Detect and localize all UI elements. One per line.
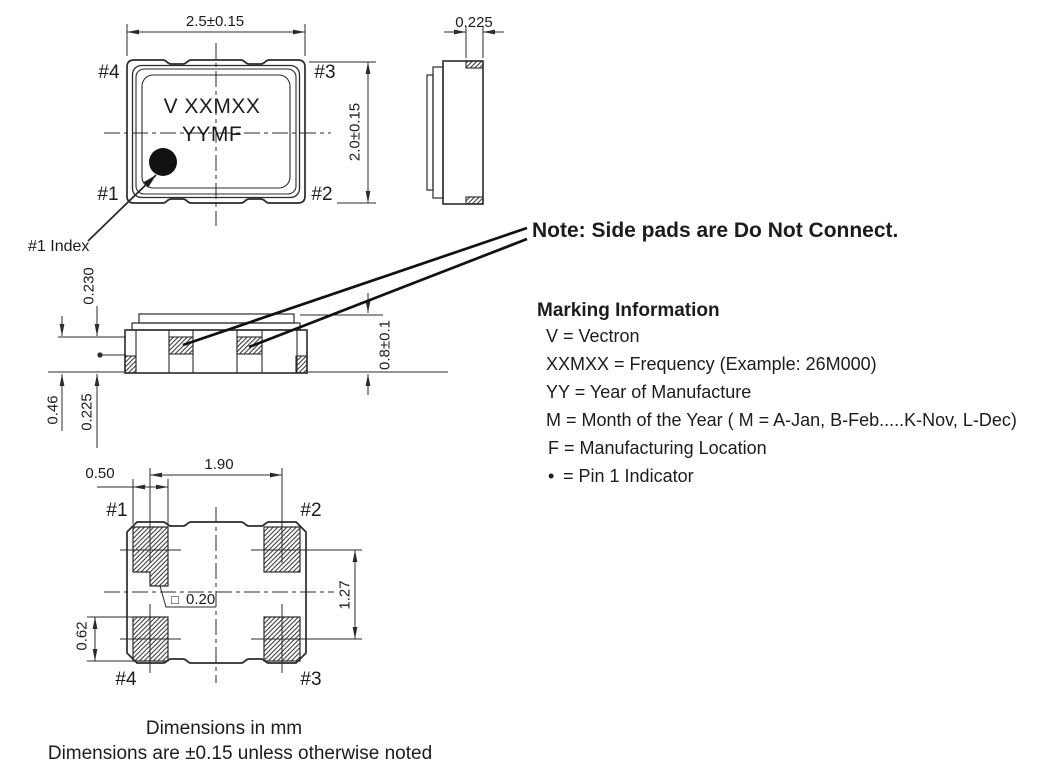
bottom-view-pitch-x-value: 1.90: [204, 456, 233, 473]
top-view-width-value: 2.5±0.15: [186, 13, 244, 30]
side-view-terminal-value: 0.225: [78, 393, 95, 431]
bottom-view-pin2-label: #2: [300, 500, 321, 521]
bottom-view-pitch-y-value: 1.27: [336, 580, 353, 609]
marking-info-line-v: V = Vectron: [546, 326, 640, 346]
pin1-indicator-text: = Pin 1 Indicator: [563, 466, 694, 486]
end-view-lid-step1: [433, 67, 443, 198]
top-view-height-dimension: [309, 62, 376, 203]
marking-info-line-m: M = Month of the Year ( M = A-Jan, B-Feb…: [546, 410, 1017, 430]
top-view-pin1-label: #1: [97, 184, 118, 205]
side-view-lid-value: 0.230: [80, 267, 97, 305]
note-leader-lines: [183, 228, 527, 347]
top-view-pin2-label: #2: [311, 184, 332, 205]
side-view-corner-terminal-right: [296, 356, 307, 373]
bottom-view-pad-height-value: 0.62: [73, 621, 90, 650]
bottom-view-pin4-label: #4: [115, 669, 137, 690]
footer-tolerance-note: Dimensions are ±0.15 unless otherwise no…: [48, 743, 432, 764]
index-notch-symbol: □: [171, 592, 179, 607]
footer-units-note: Dimensions in mm: [146, 718, 302, 739]
top-view-pin4-label: #4: [98, 62, 120, 83]
marking-info-line-yy: YY = Year of Manufacture: [546, 382, 751, 402]
side-pads-note: Note: Side pads are Do Not Connect.: [532, 219, 898, 242]
pin1-indicator-bullet: •: [548, 466, 554, 486]
bottom-view-pad-width-value: 0.50: [85, 465, 114, 482]
side-view-height-value: 0.8±0.1: [376, 320, 393, 370]
side-view-lid-layer1: [132, 323, 300, 330]
side-view-side-pad-left: [169, 337, 193, 354]
index-notch-value: 0.20: [186, 591, 215, 608]
bottom-view-pin3-label: #3: [300, 669, 321, 690]
datasheet-drawing-sheet: 2.5±0.15 2.0±0.15 #4 #3 #1 #2 V XXMXX YY…: [0, 0, 1055, 774]
top-view-pin3-label: #3: [314, 62, 335, 83]
end-view-lid-step2: [427, 75, 433, 190]
end-view-pad-value: 0.225: [455, 14, 493, 31]
end-view-top-pad: [466, 61, 483, 68]
pin1-index-dot: [149, 148, 177, 176]
end-view-bottom-pad: [466, 197, 483, 204]
side-view-corner-terminal-left: [125, 356, 136, 373]
top-view: 2.5±0.15 2.0±0.15 #4 #3 #1 #2 V XXMXX YY…: [28, 13, 376, 255]
device-marking-line2: YYMF: [182, 123, 242, 146]
marking-info-line-f: F = Manufacturing Location: [548, 438, 767, 458]
device-marking-line1: V XXMXX: [164, 95, 261, 118]
marking-info-heading: Marking Information: [537, 300, 720, 321]
annotations: Note: Side pads are Do Not Connect. Mark…: [532, 219, 1017, 486]
footer-notes: Dimensions in mm Dimensions are ±0.15 un…: [48, 718, 432, 764]
bottom-view: 1.90 0.50 1.27 0.62 □ 0.20 #1 #2 #4 #3: [73, 456, 362, 690]
end-view-body: [443, 61, 483, 204]
bottom-view-pin1-label: #1: [106, 500, 127, 521]
end-view: 0.225: [427, 14, 504, 204]
side-view-side-pad-value: 0.46: [44, 395, 61, 424]
pin1-index-label: #1 Index: [28, 238, 89, 255]
top-view-height-value: 2.0±0.15: [346, 103, 363, 161]
marking-info-line-xxmxx: XXMXX = Frequency (Example: 26M000): [546, 354, 877, 374]
package-drawing-canvas: 2.5±0.15 2.0±0.15 #4 #3 #1 #2 V XXMXX YY…: [0, 0, 1055, 774]
